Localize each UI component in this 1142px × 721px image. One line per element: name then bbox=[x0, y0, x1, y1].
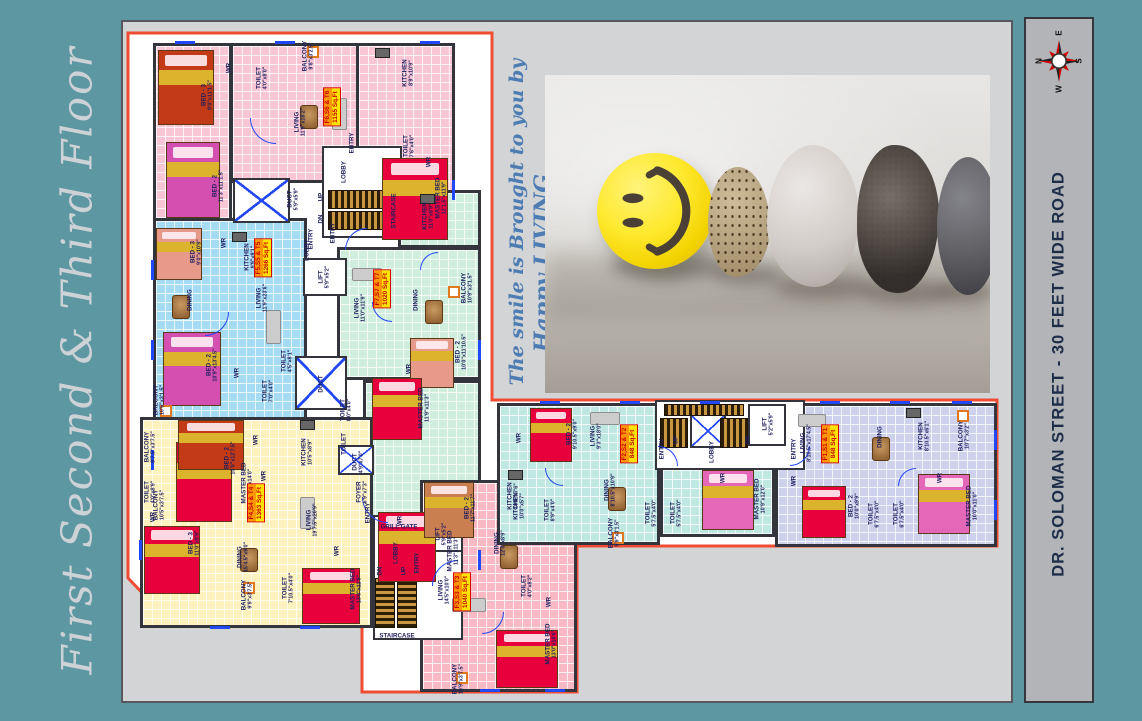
pebble-lava-icon bbox=[857, 145, 939, 293]
room-label: LIVING8'10.5"x17'4.5" bbox=[799, 424, 812, 462]
room-label: KITCHEN10'0"x5'7" bbox=[512, 492, 525, 520]
unit-badge: F7,S7 & T71020 Sq.Ft bbox=[373, 270, 391, 309]
room-label: WR bbox=[936, 473, 943, 483]
unit-badge: F6,S6 & T61155 Sq.Ft bbox=[323, 88, 341, 127]
room-label: MASTER BED12'1.5"x11'9" bbox=[434, 178, 447, 219]
room-label: UP bbox=[317, 193, 324, 202]
room-label: WR bbox=[252, 435, 259, 445]
room-label: DN bbox=[744, 436, 751, 445]
room-label: LIVING19'7.5"x20'9" bbox=[305, 503, 318, 536]
room-label: WR bbox=[260, 471, 267, 481]
smiley-ball-icon bbox=[597, 153, 713, 269]
room-label: BED - 211'3"x11'1.5" bbox=[211, 170, 224, 203]
room-label: MASTER BED13'0"x10'6" bbox=[544, 624, 557, 665]
room-label: ENTRY bbox=[413, 553, 420, 574]
room-label: BED - 211'7"x11'7" bbox=[463, 494, 476, 522]
room-label: LOBBY bbox=[303, 239, 310, 261]
unit-badge: F3,S3 & T31040 Sq.Ft bbox=[453, 573, 471, 612]
room-label: WR bbox=[225, 63, 232, 73]
street-strip: E S W N DR. SOLOMAN STREET - 30 FEET WID… bbox=[1024, 17, 1094, 703]
room-label: STAIRCASE bbox=[379, 632, 414, 639]
room-label: WR bbox=[425, 157, 432, 167]
room-label: TOILET bbox=[340, 433, 347, 455]
room-label: LOBBY bbox=[708, 441, 715, 463]
pebble-gray-icon bbox=[767, 145, 859, 287]
room-label: TOILET4'5"x8'1" bbox=[280, 350, 293, 373]
room-label: TOILET7'10.5"x4'0" bbox=[281, 573, 294, 603]
room-label: BED - 210'0"x12'7.5" bbox=[223, 441, 236, 474]
room-label: LIVING11'9"x18'2" bbox=[293, 108, 306, 136]
room-label: MASTER BED13'0"x11'9" bbox=[349, 569, 362, 610]
room-label: BED - 210'0"x11'10.5" bbox=[454, 334, 467, 370]
room-label: TOILET6'7.5"x4'0" bbox=[892, 500, 905, 527]
room-label: TOILET7'6"x4'0" bbox=[402, 135, 415, 158]
room-label: TOILET5'7.5"x4'0" bbox=[644, 499, 657, 526]
room-label: TOILET5'7.5"x4'0" bbox=[669, 499, 682, 526]
room-label: BED - 210'0"x9'9" bbox=[847, 493, 860, 519]
room-label: DINING15'4.5"x9'0" bbox=[236, 542, 249, 572]
room-label: TOILET6'7.5"x4'0" bbox=[867, 500, 880, 527]
room-label: DUCT bbox=[317, 375, 324, 392]
room-label: UP bbox=[400, 567, 407, 576]
room-label: LOBBY bbox=[340, 161, 347, 183]
room-label: LIVING14'5"x10'0" bbox=[437, 576, 450, 605]
room-label: BED - 311'0"x9'9" bbox=[187, 530, 200, 555]
unit-badge: F2,S2 & T2848 Sq.Ft bbox=[620, 425, 638, 464]
room-label: ENTRY bbox=[348, 133, 355, 154]
promo-line-1: The smile is Brought to you by bbox=[506, 59, 528, 386]
room-label: BED - 39'0"x11'1.5" bbox=[200, 80, 213, 110]
compass-e-label: E bbox=[1055, 30, 1064, 35]
compass-n-label: N bbox=[1035, 58, 1044, 64]
room-label: BED - 29'10.5"x9'0" bbox=[565, 419, 578, 449]
pebble-dark-icon bbox=[937, 157, 990, 295]
room-label: LOBBY bbox=[392, 542, 399, 564]
smiley-face-icon bbox=[597, 153, 713, 269]
compass-w-label: W bbox=[1055, 85, 1064, 93]
room-label: KITCHEN11'0"x8'9" bbox=[421, 202, 434, 230]
room-label: WR bbox=[790, 476, 797, 486]
room-label: MASTER BED10'0"x11'0" bbox=[965, 486, 978, 527]
room-label: ENTRY bbox=[658, 439, 665, 460]
room-label: MASTER BED11'3"x11'3" bbox=[446, 531, 459, 572]
room-label: DINING12'0"x8'9" bbox=[493, 530, 506, 556]
happy-living-photo bbox=[545, 75, 990, 393]
room-label: GRILL GATE bbox=[381, 523, 418, 530]
brochure-page: First Second & Third Floor BED - 39'0"x1… bbox=[0, 0, 1142, 721]
room-label: BALCONY9'8"x3'2.5" bbox=[301, 41, 314, 72]
room-label: WR bbox=[333, 546, 340, 556]
room-label: KITCHEN8'10.5"x6'1" bbox=[917, 421, 930, 451]
room-label: ENTRY bbox=[364, 503, 371, 524]
room-label: BALCONY10'9"x3'7.5" bbox=[451, 664, 464, 695]
room-label: WR bbox=[405, 364, 412, 374]
room-label: STAIRCASE bbox=[390, 193, 397, 228]
room-label: DINING bbox=[876, 426, 883, 448]
room-label: TOILET4'0"x8'0" bbox=[255, 67, 268, 90]
room-label: BALCONY10'7"x3'2" bbox=[957, 421, 970, 452]
unit-badge: F1,S1 & T1848 Sq.Ft bbox=[821, 425, 839, 464]
room-label: MASTER BED10'9"x12'0" bbox=[753, 479, 766, 520]
room-label: LIVING11'9"x23'6" bbox=[255, 284, 268, 312]
room-label: ENTRY bbox=[790, 439, 797, 460]
unit-badge: F5,S5 & T51266 Sq.Ft bbox=[254, 239, 272, 278]
room-label: TOILET8'0"x4'0" bbox=[339, 399, 352, 422]
room-label: BED - 39'0"x10'9" bbox=[189, 239, 202, 265]
room-label: TOILET4'0"x8'2" bbox=[520, 575, 533, 598]
room-label: FOYER6'9"x7'3" bbox=[355, 481, 368, 504]
room-label: KITCHEN10'5"x8'9" bbox=[300, 438, 313, 466]
room-label: TOILET8'9"x4'0" bbox=[543, 499, 556, 522]
room-label: BALCONY10'5"x3'1.5" bbox=[152, 385, 165, 416]
room-label: DINING bbox=[186, 289, 193, 311]
room-label: TOILET4'0"x8'9" bbox=[143, 481, 156, 504]
compass-s-label: S bbox=[1075, 58, 1084, 63]
room-label: WR bbox=[233, 368, 240, 378]
room-label: DUCT4'9"x7'0" bbox=[351, 451, 364, 474]
room-label: BED - 210'9"x13'4.5" bbox=[205, 348, 218, 381]
street-label: DR. SOLOMAN STREET - 30 FEET WIDE ROAD bbox=[1050, 171, 1069, 577]
room-label: WR bbox=[719, 473, 726, 483]
room-label: BALCONY9'9"x3'1.5" bbox=[607, 518, 620, 549]
room-label: WR bbox=[515, 433, 522, 443]
room-label: BALCONY9'7.5"x3'7.5" bbox=[143, 431, 156, 463]
room-label: LIVING11'0"x11'9" bbox=[353, 294, 366, 322]
room-label: ENTRY bbox=[329, 223, 336, 244]
unit-badge: F4,S4 & T41363 Sq.Ft bbox=[247, 484, 265, 523]
room-label: DN bbox=[317, 215, 324, 224]
room-label: DUCT5'9"x5'9" bbox=[286, 188, 299, 211]
room-label: BALCONY9'9"x3'7.5" bbox=[240, 580, 253, 611]
room-label: TOILET7'0"x4'0" bbox=[261, 380, 274, 403]
room-label: LIFT5'9"x5'2" bbox=[434, 523, 447, 546]
room-label: LIVING9'3"x18'0" bbox=[589, 423, 602, 449]
room-label: UP bbox=[672, 436, 679, 445]
room-label: DINING8'10.5"x10'9" bbox=[603, 473, 616, 506]
room-label: WR bbox=[220, 238, 227, 248]
room-label: WR bbox=[149, 512, 156, 522]
pebble-beige-icon bbox=[708, 167, 770, 277]
room-label: BALCONY10'9"x3'1.5" bbox=[460, 273, 473, 304]
room-label: DN bbox=[376, 567, 383, 576]
room-label: LIFT5'2"x5'9" bbox=[761, 413, 774, 436]
room-label: WR bbox=[545, 597, 552, 607]
room-label: DINING bbox=[412, 289, 419, 311]
room-label: LIFT5'9"x5'2" bbox=[317, 266, 330, 289]
room-label: KITCHEN8'9"x10'9" bbox=[401, 59, 414, 87]
room-label: MASTER BED11'9"x11'3" bbox=[417, 388, 430, 429]
